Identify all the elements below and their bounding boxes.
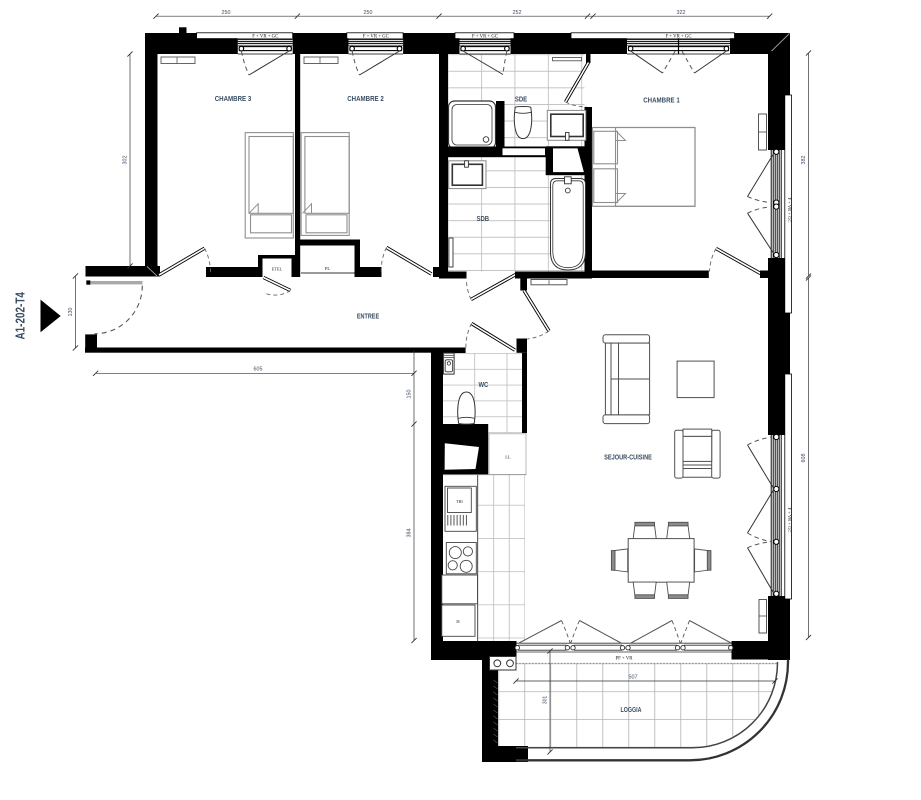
svg-text:SDE: SDE [515, 96, 528, 103]
svg-text:ETEL: ETEL [272, 267, 283, 272]
svg-text:CHAMBRE 3: CHAMBRE 3 [215, 94, 252, 103]
svg-text:PL: PL [325, 266, 331, 271]
svg-text:WC: WC [479, 382, 489, 389]
svg-text:TRI: TRI [456, 499, 463, 504]
svg-text:F + VR + GC: F + VR + GC [363, 35, 389, 40]
svg-text:PF + VR: PF + VR [615, 657, 633, 662]
svg-text:384: 384 [406, 529, 412, 538]
svg-text:F + VR + GC: F + VR + GC [787, 197, 792, 222]
svg-text:F + VR + GC: F + VR + GC [252, 35, 278, 40]
svg-text:CHAMBRE 2: CHAMBRE 2 [347, 94, 384, 103]
svg-text:605: 605 [254, 366, 263, 372]
svg-text:LL: LL [505, 455, 511, 460]
svg-text:250: 250 [222, 10, 231, 16]
svg-text:F + VR + GC: F + VR + GC [472, 35, 498, 40]
svg-text:SEJOUR-CUISINE: SEJOUR-CUISINE [604, 453, 652, 462]
svg-text:A1-202-T4: A1-202-T4 [14, 292, 28, 340]
svg-text:130: 130 [68, 308, 74, 317]
svg-text:F + VR + GC: F + VR + GC [787, 507, 792, 532]
svg-text:250: 250 [364, 10, 373, 16]
svg-text:382: 382 [801, 156, 807, 165]
svg-text:322: 322 [677, 10, 686, 16]
svg-text:150: 150 [406, 390, 412, 399]
svg-text:608: 608 [801, 454, 807, 463]
svg-text:301: 301 [543, 696, 549, 705]
svg-text:302: 302 [123, 156, 129, 165]
svg-text:SDB: SDB [477, 216, 490, 223]
svg-text:ENTREE: ENTREE [357, 312, 379, 321]
svg-text:CHAMBRE 1: CHAMBRE 1 [643, 95, 680, 104]
svg-text:507: 507 [629, 674, 638, 680]
svg-text:LOGGIA: LOGGIA [621, 705, 642, 714]
svg-text:252: 252 [513, 10, 522, 16]
